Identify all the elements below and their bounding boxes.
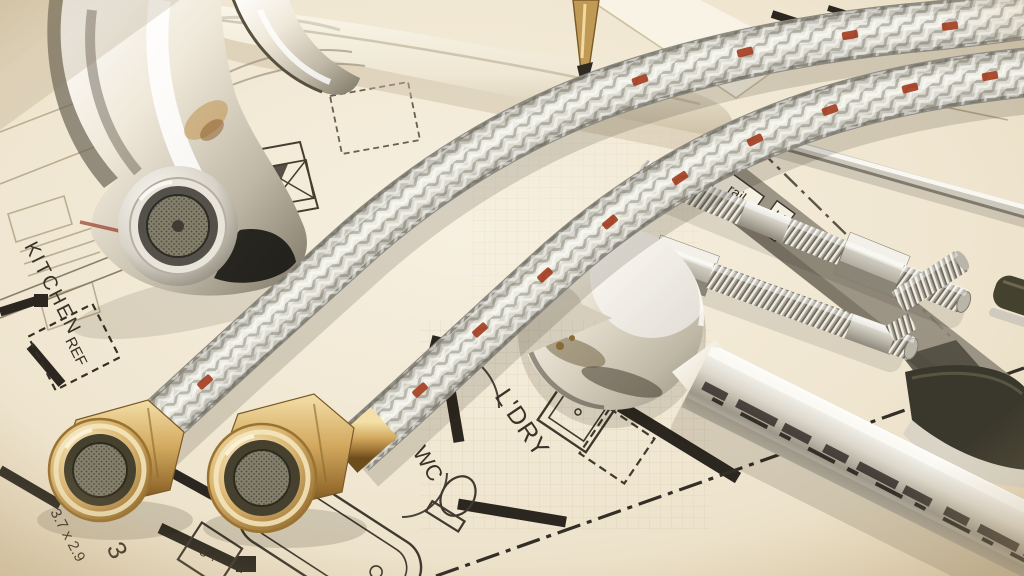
photo-plumbing-blueprint: s + REF DIN 4.5 x 4.6 KITCHEN L'DRY WC H… (0, 0, 1024, 576)
vignette (0, 0, 1024, 576)
photo-canvas: s + REF DIN 4.5 x 4.6 KITCHEN L'DRY WC H… (0, 0, 1024, 576)
